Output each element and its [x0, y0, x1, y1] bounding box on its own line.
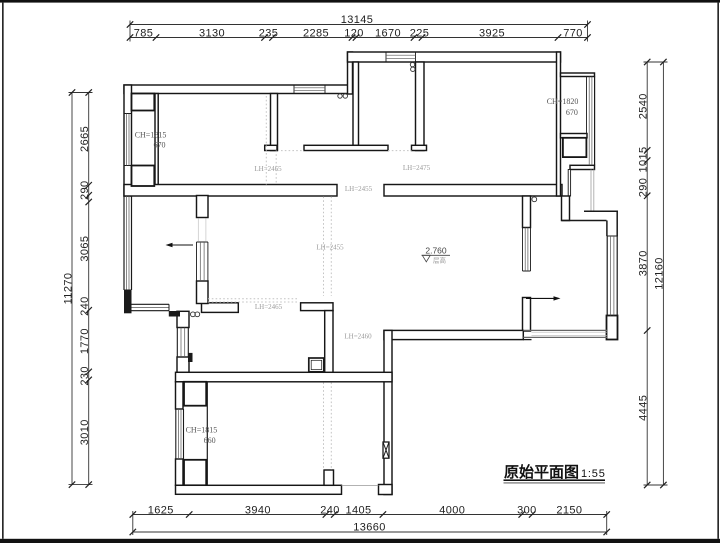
svg-text:13145: 13145: [341, 14, 374, 26]
svg-text:13660: 13660: [353, 522, 386, 534]
svg-text:LH=2465: LH=2465: [254, 165, 282, 173]
svg-text:2.760: 2.760: [425, 246, 447, 256]
svg-text:4445: 4445: [638, 395, 650, 421]
svg-text:2540: 2540: [638, 93, 650, 119]
svg-text:11270: 11270: [63, 273, 75, 305]
svg-text:CH=1815: CH=1815: [135, 131, 167, 140]
svg-text:2665: 2665: [79, 126, 91, 152]
svg-text:LH=2455: LH=2455: [345, 185, 373, 193]
svg-text:3870: 3870: [638, 250, 650, 276]
svg-text:1:55: 1:55: [581, 468, 606, 480]
svg-text:LH=2475: LH=2475: [403, 164, 431, 172]
svg-text:770: 770: [563, 27, 583, 39]
svg-text:300: 300: [517, 505, 537, 517]
svg-text:670: 670: [566, 108, 578, 117]
svg-text:3130: 3130: [199, 27, 225, 39]
svg-text:290: 290: [638, 178, 650, 198]
svg-text:2150: 2150: [556, 505, 582, 517]
svg-text:1015: 1015: [638, 146, 650, 172]
svg-text:LH=2465: LH=2465: [255, 303, 283, 311]
svg-text:235: 235: [259, 27, 279, 39]
svg-text:3940: 3940: [245, 505, 271, 517]
svg-text:12160: 12160: [654, 257, 666, 290]
svg-text:230: 230: [79, 366, 91, 386]
svg-text:120: 120: [344, 27, 364, 39]
svg-text:670: 670: [154, 141, 166, 150]
svg-text:3065: 3065: [79, 236, 91, 262]
svg-text:1670: 1670: [375, 27, 401, 39]
svg-text:3925: 3925: [479, 27, 505, 39]
svg-text:4000: 4000: [439, 505, 465, 517]
svg-text:2285: 2285: [303, 27, 329, 39]
svg-text:3010: 3010: [79, 419, 91, 445]
svg-text:240: 240: [320, 505, 340, 517]
svg-text:LH=2460: LH=2460: [344, 332, 372, 340]
svg-text:1625: 1625: [148, 505, 174, 517]
svg-text:240: 240: [79, 296, 91, 316]
svg-text:660: 660: [204, 436, 216, 445]
svg-text:LH=2455: LH=2455: [316, 244, 344, 252]
svg-text:1405: 1405: [345, 505, 371, 517]
svg-text:CH=1815: CH=1815: [186, 425, 218, 434]
svg-text:785: 785: [134, 27, 154, 39]
svg-text:1770: 1770: [79, 328, 91, 354]
svg-text:原始平面图: 原始平面图: [504, 463, 579, 481]
svg-text:290: 290: [79, 180, 91, 200]
svg-text:CH=1820: CH=1820: [547, 97, 579, 106]
svg-text:层高: 层高: [433, 256, 447, 265]
svg-text:225: 225: [410, 27, 430, 39]
